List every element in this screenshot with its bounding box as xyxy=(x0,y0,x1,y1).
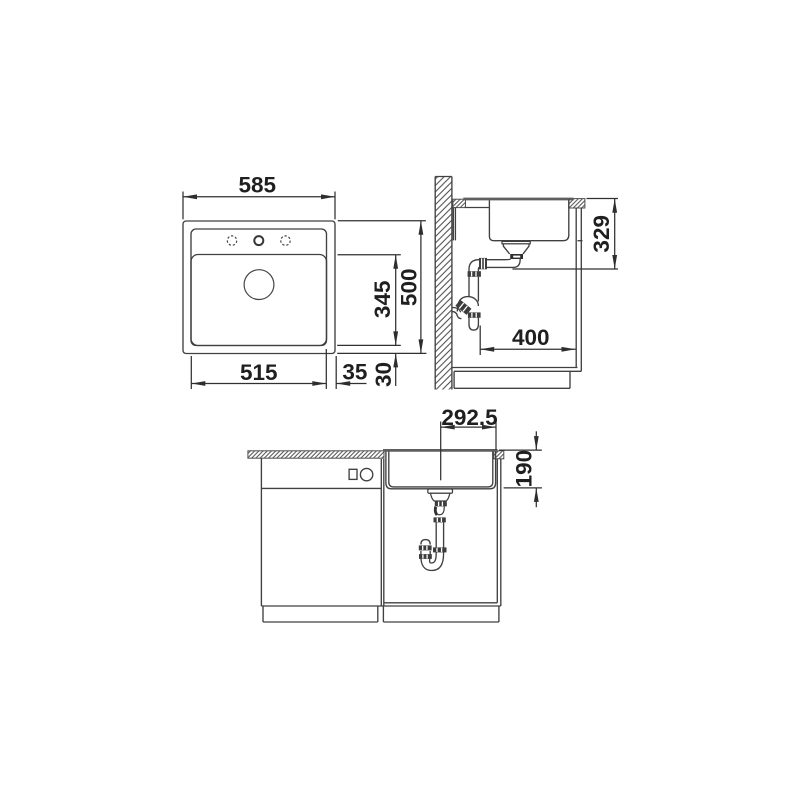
svg-text:345: 345 xyxy=(370,281,395,319)
svg-text:500: 500 xyxy=(396,269,421,307)
svg-text:400: 400 xyxy=(512,325,550,350)
svg-text:515: 515 xyxy=(240,360,278,385)
svg-text:292.5: 292.5 xyxy=(441,405,497,430)
svg-text:30: 30 xyxy=(371,362,396,387)
svg-text:190: 190 xyxy=(512,450,537,488)
svg-text:585: 585 xyxy=(239,173,277,198)
svg-text:35: 35 xyxy=(342,360,367,385)
svg-text:329: 329 xyxy=(589,215,614,253)
